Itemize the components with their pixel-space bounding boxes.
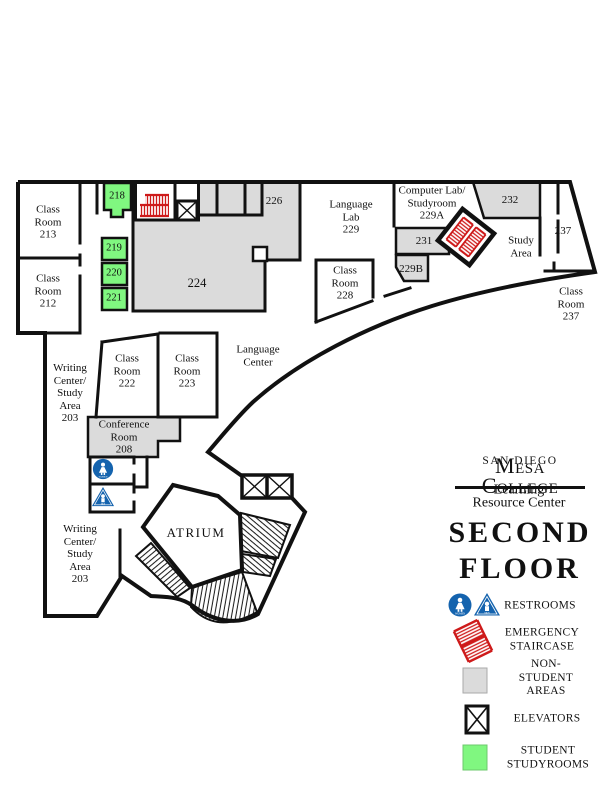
atrium-stairs-east xyxy=(241,513,290,558)
room-label-222: Class Room 222 xyxy=(114,352,141,390)
elevator-north xyxy=(177,201,197,220)
room-label-language-center: Language Center xyxy=(236,344,279,369)
legend-non-student-swatch xyxy=(463,668,487,693)
legend-women-icon xyxy=(449,594,472,617)
room-label-219: 219 xyxy=(106,243,122,254)
room-label-218: 218 xyxy=(109,191,125,202)
map-women-restroom xyxy=(93,459,113,479)
floor-plan-page: WOMEN MEN xyxy=(0,0,612,792)
atrium-label: ATRIUM xyxy=(167,527,226,540)
legend-elevators-label: ELEVATORS xyxy=(514,712,581,726)
room-label-226: 226 xyxy=(266,195,283,208)
legend-restrooms-label: RESTROOMS xyxy=(504,599,576,613)
legend-student-swatch xyxy=(463,745,487,770)
room-label-228: Class Room 228 xyxy=(332,264,359,302)
room-label-237: 237 xyxy=(555,225,572,238)
room-label-232: 232 xyxy=(502,194,519,207)
room-label-223: Class Room 223 xyxy=(174,352,201,390)
legend-elevator-icon xyxy=(466,706,488,733)
room-label-writing-center-lower: Writing Center/ Study Area 203 xyxy=(63,523,97,586)
legend-student-label: STUDENT STUDYROOMS xyxy=(507,745,589,772)
floor-title-line2: FLOOR xyxy=(459,552,581,586)
room-label-229b: 229B xyxy=(399,263,423,276)
room-label-231: 231 xyxy=(416,235,433,248)
room-label-220: 220 xyxy=(106,268,122,279)
map-men-restroom xyxy=(92,487,114,506)
room-label-213: Class Room 213 xyxy=(35,203,62,241)
legend-emergency-staircase-icon xyxy=(454,620,492,662)
room-label-computer-lab: Computer Lab/ Studyroom 229A xyxy=(399,184,466,222)
interior-notch xyxy=(253,247,267,261)
atrium-stairs-southeast xyxy=(242,554,276,576)
room-label-224: 224 xyxy=(188,277,207,290)
room-label-classroom-237: Class Room 237 xyxy=(558,285,585,323)
legend-men-icon xyxy=(474,593,500,616)
floor-title-line1: SECOND xyxy=(448,516,591,550)
legend-non-student-label: NON-STUDENT AREAS xyxy=(513,658,579,699)
room-label-221: 221 xyxy=(106,293,122,304)
legend-emergency-label: EMERGENCY STAIRCASE xyxy=(505,627,579,654)
subtitle-learning-resource-center: Learning Resource Center xyxy=(473,485,566,510)
elevator-pair-atrium xyxy=(242,475,292,498)
room-label-conference-208: Conference Room 208 xyxy=(99,418,150,456)
room-label-language-lab: Language Lab 229 xyxy=(329,198,372,236)
room-label-212: Class Room 212 xyxy=(35,272,62,310)
room-label-study-area: Study Area xyxy=(508,235,534,260)
room-label-writing-center-upper: Writing Center/ Study Area 203 xyxy=(53,362,87,425)
